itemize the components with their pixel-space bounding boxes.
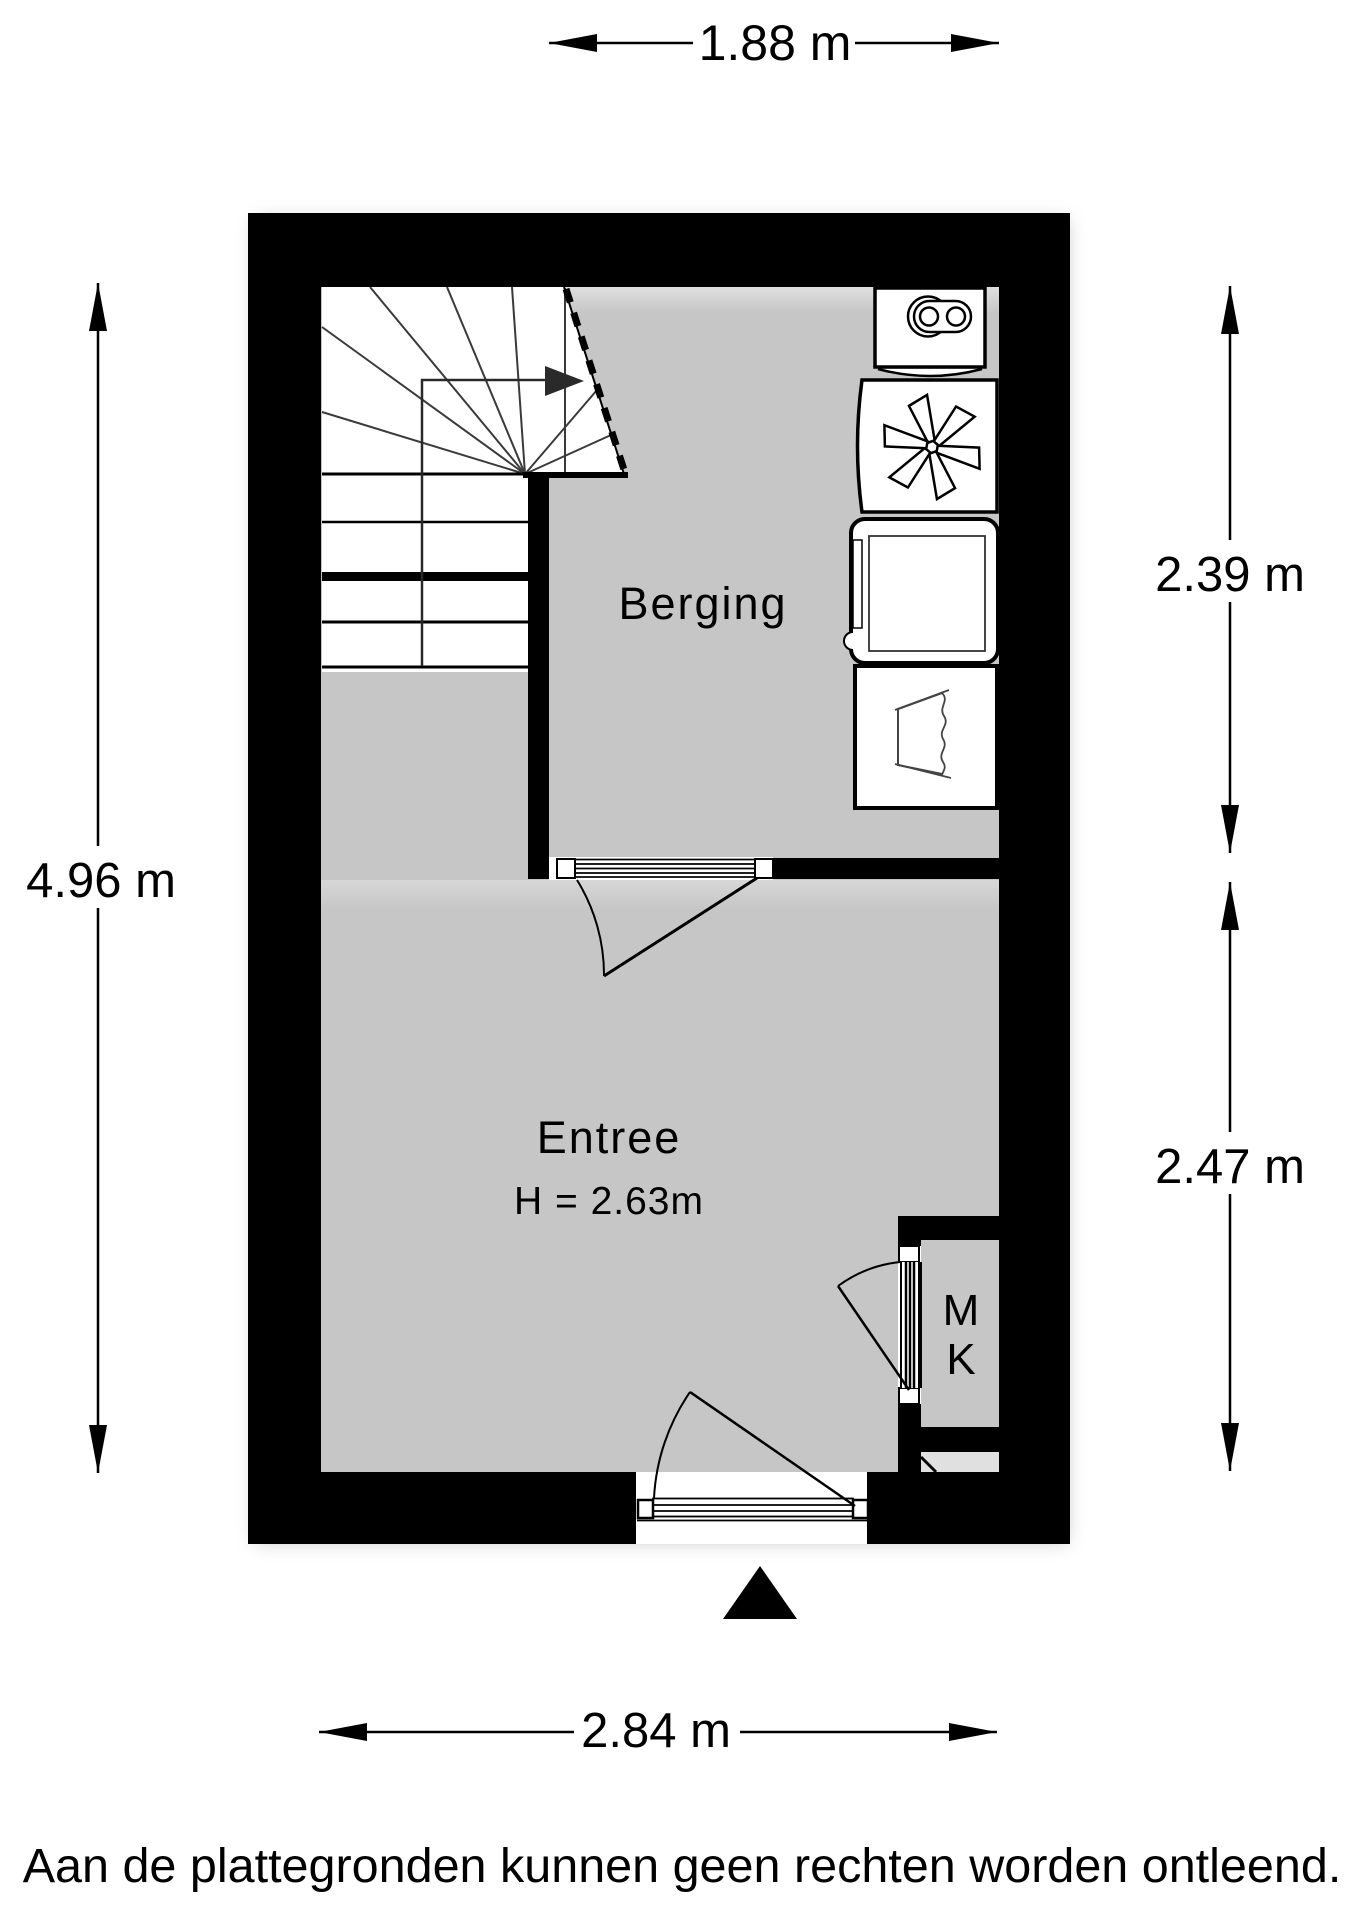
svg-text:4.96 m: 4.96 m — [26, 854, 176, 908]
svg-text:2.39 m: 2.39 m — [1155, 548, 1305, 602]
svg-text:2.47 m: 2.47 m — [1155, 1140, 1305, 1194]
svg-text:2.84 m: 2.84 m — [581, 1704, 731, 1758]
svg-text:Berging: Berging — [618, 578, 787, 629]
svg-text:M: M — [943, 1286, 980, 1335]
svg-text:H = 2.63m: H = 2.63m — [514, 1180, 704, 1223]
svg-text:Aan de plattegronden kunnen ge: Aan de plattegronden kunnen geen rechten… — [23, 1839, 1342, 1893]
svg-text:Entree: Entree — [537, 1112, 682, 1163]
svg-text:1.88 m: 1.88 m — [699, 15, 852, 71]
svg-text:K: K — [946, 1335, 975, 1384]
